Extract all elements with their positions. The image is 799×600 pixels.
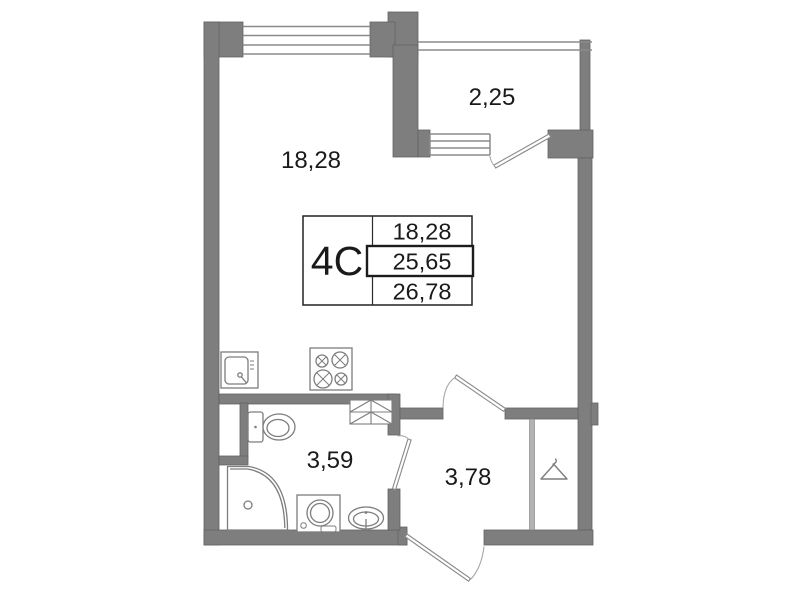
- area-total-with-balcony: 26,78: [393, 279, 452, 305]
- doors: [393, 134, 551, 581]
- wall-bathroom-right-lower: [388, 489, 400, 530]
- bathroom-door-icon: [393, 436, 412, 490]
- wall-balcony-left-stem: [393, 45, 418, 157]
- ventilation-shaft-icon: [350, 400, 392, 424]
- stove-icon: [310, 348, 352, 390]
- wall-balcony-foot: [418, 130, 430, 157]
- corner-shower-icon: [228, 467, 288, 531]
- wardrobe-divider: [530, 419, 535, 530]
- area-total: 25,65: [393, 249, 452, 275]
- wall-hallway-top-left: [400, 408, 443, 419]
- area-living: 18,28: [393, 219, 452, 245]
- wall-right-bump: [591, 403, 598, 425]
- wall-right: [578, 158, 592, 530]
- floor-plan: 4С 18,28 25,65 26,78 18,28 2,25 3,59 3,7…: [0, 0, 799, 600]
- balcony-door-icon: [490, 134, 551, 168]
- wardrobe: [530, 419, 568, 530]
- wall-bottom-right: [484, 530, 593, 545]
- washing-machine-icon: [297, 495, 340, 532]
- floor-plan-canvas: 4С 18,28 25,65 26,78 18,28 2,25 3,59 3,7…: [0, 0, 799, 600]
- wall-balcony-right: [580, 40, 590, 135]
- main-window-icon: [243, 27, 370, 55]
- balcony-area-label: 2,25: [469, 84, 516, 111]
- room-door-icon: [443, 375, 506, 411]
- wall-hallway-top-right: [505, 408, 578, 419]
- pedestal-sink-icon: [349, 507, 384, 532]
- balcony-railing-icon: [418, 42, 592, 50]
- wall-left: [204, 22, 219, 545]
- toilet-icon: [248, 412, 295, 442]
- kitchen-sink-icon: [221, 352, 258, 388]
- bathroom-area-label: 3,59: [307, 447, 354, 474]
- entry-door-icon: [405, 534, 484, 581]
- wall-balcony-door-block: [548, 130, 593, 158]
- wall-niche-bottom: [219, 456, 248, 465]
- hallway-area-label: 3,78: [445, 464, 492, 491]
- clothes-hanger-icon: [541, 459, 567, 479]
- wall-niche-right: [240, 403, 248, 458]
- info-table: 4С 18,28 25,65 26,78: [303, 216, 473, 305]
- main-room-area-label: 18,28: [281, 147, 341, 174]
- balcony-window-icon: [430, 134, 490, 155]
- wall-top-center-arm: [370, 22, 395, 57]
- apartment-type-label: 4С: [311, 238, 363, 284]
